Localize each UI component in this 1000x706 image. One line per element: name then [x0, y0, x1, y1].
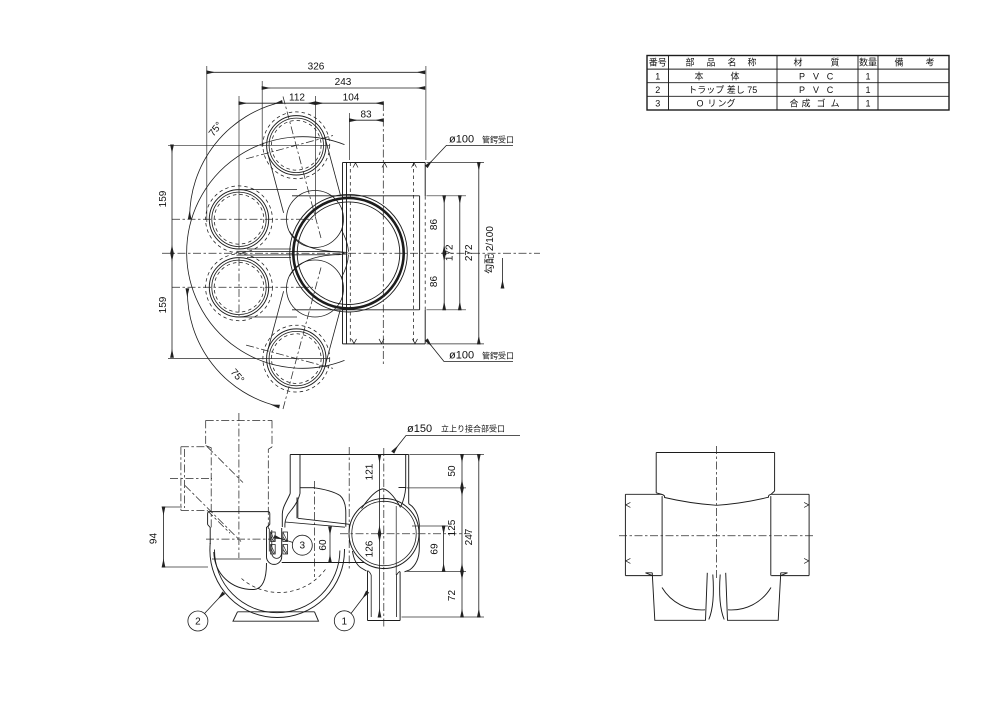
- svg-text:体: 体: [730, 70, 739, 81]
- svg-text:247: 247: [464, 528, 475, 545]
- svg-text:備: 備: [894, 57, 903, 68]
- svg-text:P: P: [799, 85, 805, 95]
- svg-text:品: 品: [706, 58, 715, 68]
- svg-text:P: P: [799, 71, 805, 81]
- svg-text:管鍔受口: 管鍔受口: [482, 350, 514, 360]
- svg-text:考: 考: [925, 58, 934, 68]
- svg-text:86: 86: [429, 276, 440, 288]
- svg-text:名: 名: [727, 57, 736, 68]
- svg-text:159: 159: [158, 296, 169, 313]
- svg-text:2: 2: [655, 85, 660, 95]
- svg-text:成: 成: [801, 98, 810, 109]
- svg-text:104: 104: [343, 92, 360, 103]
- svg-text:部: 部: [685, 57, 694, 68]
- svg-text:グ: グ: [726, 98, 735, 109]
- svg-text:V: V: [813, 85, 819, 95]
- svg-text:数量: 数量: [859, 57, 877, 68]
- svg-text:O: O: [696, 99, 703, 109]
- svg-text:1: 1: [865, 85, 870, 95]
- svg-text:番号: 番号: [649, 57, 667, 68]
- svg-text:72: 72: [447, 590, 458, 602]
- svg-text:ゴ: ゴ: [816, 98, 825, 109]
- svg-text:1: 1: [865, 71, 870, 81]
- svg-text:125: 125: [447, 519, 458, 536]
- svg-text:86: 86: [429, 219, 440, 231]
- svg-text:112: 112: [289, 92, 305, 103]
- svg-text:C: C: [827, 85, 834, 95]
- svg-text:69: 69: [430, 543, 441, 555]
- svg-text:50: 50: [447, 465, 458, 477]
- svg-text:60: 60: [318, 539, 329, 551]
- svg-text:ン: ン: [717, 99, 726, 109]
- svg-text:質: 質: [830, 57, 839, 68]
- svg-text:管鍔受口: 管鍔受口: [482, 134, 514, 144]
- svg-text:C: C: [827, 71, 834, 81]
- svg-text:83: 83: [360, 109, 372, 120]
- svg-text:V: V: [813, 71, 819, 81]
- svg-text:243: 243: [335, 77, 352, 88]
- svg-text:3: 3: [300, 541, 306, 552]
- svg-text:2: 2: [195, 617, 201, 628]
- svg-text:立上り接合部受口: 立上り接合部受口: [441, 424, 505, 434]
- svg-text:1: 1: [865, 99, 870, 109]
- svg-text:称: 称: [747, 57, 756, 68]
- svg-text:本: 本: [694, 70, 703, 81]
- svg-text:リ: リ: [707, 99, 716, 109]
- svg-text:合: 合: [789, 98, 798, 109]
- svg-text:トラップ 差し 75: トラップ 差し 75: [688, 84, 757, 95]
- svg-text:ø100: ø100: [449, 350, 474, 362]
- svg-text:326: 326: [308, 62, 325, 73]
- svg-text:172: 172: [445, 244, 456, 261]
- svg-text:材: 材: [793, 57, 802, 68]
- svg-text:ム: ム: [830, 99, 839, 109]
- svg-text:272: 272: [464, 244, 475, 261]
- svg-text:3: 3: [655, 99, 660, 109]
- svg-text:1: 1: [655, 71, 660, 81]
- svg-text:ø100: ø100: [449, 134, 474, 146]
- svg-text:126: 126: [365, 540, 376, 557]
- svg-text:勾配 2/100: 勾配 2/100: [483, 226, 496, 274]
- svg-text:159: 159: [158, 190, 169, 207]
- svg-text:94: 94: [149, 533, 160, 545]
- svg-text:121: 121: [365, 463, 376, 480]
- svg-text:1: 1: [342, 616, 348, 627]
- svg-text:ø150: ø150: [407, 423, 432, 435]
